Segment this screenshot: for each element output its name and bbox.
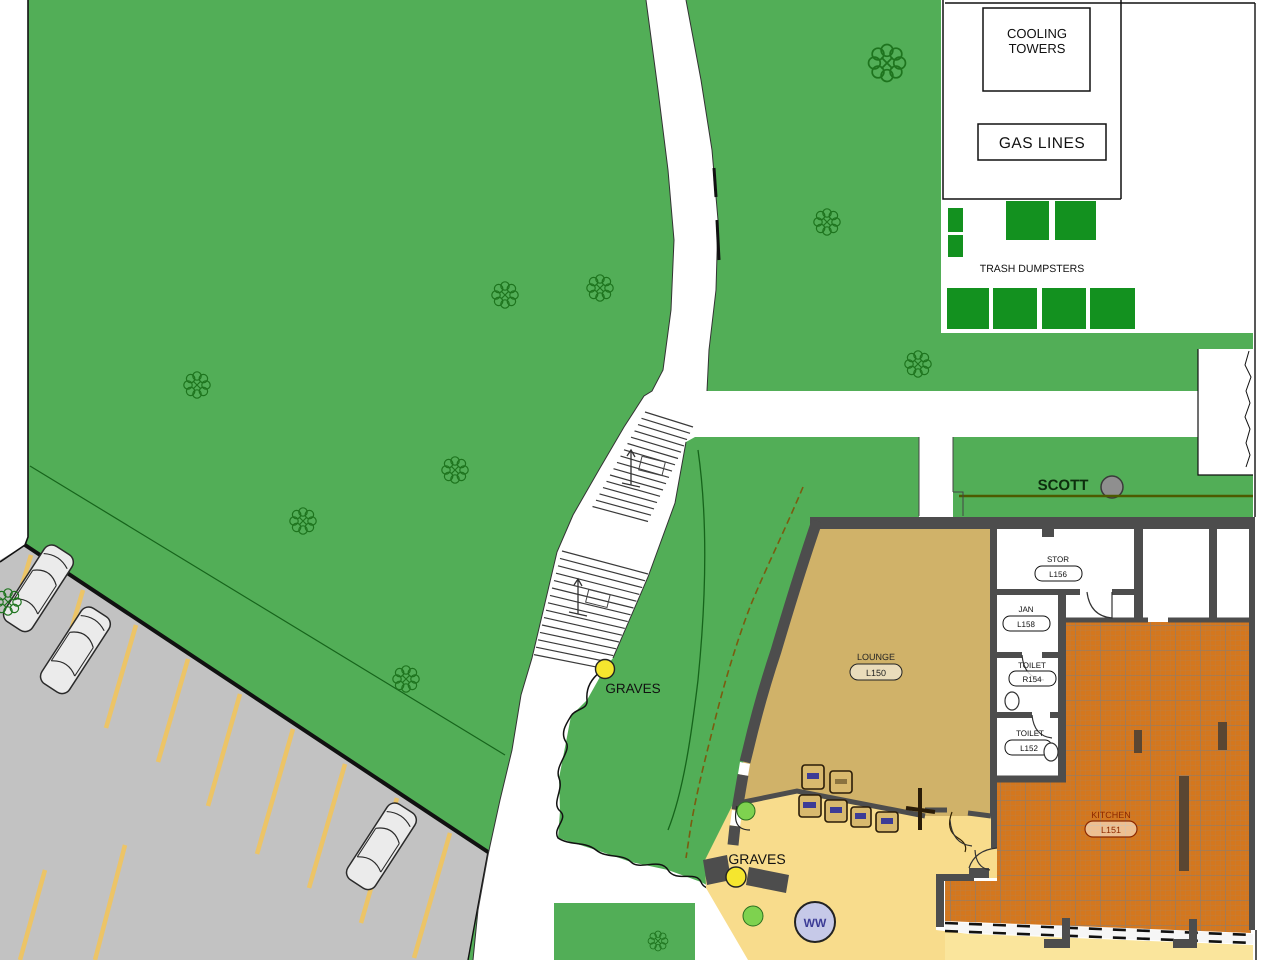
svg-text:COOLING: COOLING — [1007, 26, 1067, 41]
svg-text:WW: WW — [804, 916, 827, 930]
svg-text:L158: L158 — [1017, 620, 1035, 629]
svg-text:TOILET: TOILET — [1016, 729, 1044, 738]
svg-text:TRASH DUMPSTERS: TRASH DUMPSTERS — [980, 263, 1084, 275]
svg-text:JAN: JAN — [1018, 605, 1033, 614]
svg-text:STOR: STOR — [1047, 555, 1069, 564]
svg-text:GRAVES: GRAVES — [605, 681, 660, 696]
svg-text:GAS LINES: GAS LINES — [999, 135, 1085, 152]
svg-text:L150: L150 — [866, 668, 886, 678]
svg-text:TOWERS: TOWERS — [1009, 41, 1066, 56]
svg-text:TOILET: TOILET — [1018, 661, 1046, 670]
svg-text:LOUNGE: LOUNGE — [857, 652, 895, 662]
svg-text:KITCHEN: KITCHEN — [1091, 810, 1131, 820]
svg-text:L151: L151 — [1101, 825, 1121, 835]
svg-text:L156: L156 — [1049, 570, 1067, 579]
svg-text:GRAVES: GRAVES — [728, 851, 785, 867]
svg-text:SCOTT: SCOTT — [1038, 477, 1089, 494]
svg-text:L152: L152 — [1020, 744, 1038, 753]
svg-text:R154: R154 — [1022, 675, 1042, 684]
